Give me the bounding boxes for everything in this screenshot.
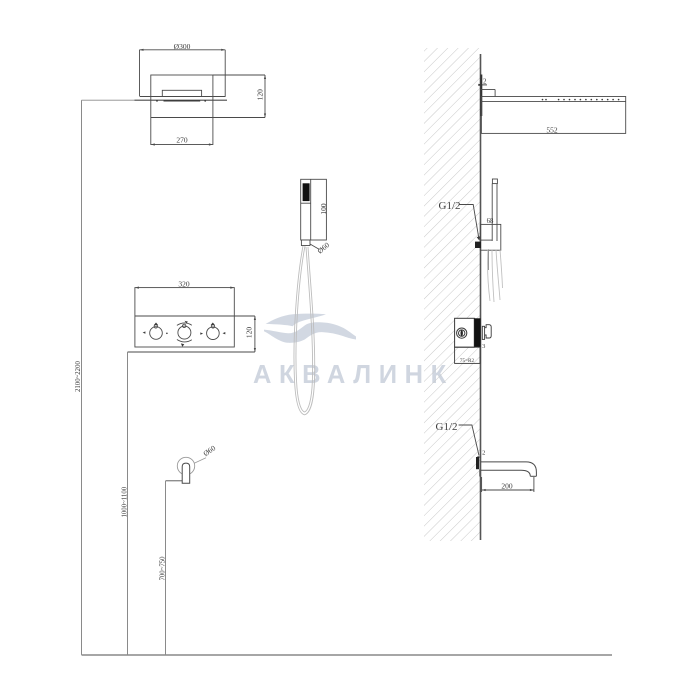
svg-text:700~750: 700~750	[160, 556, 167, 581]
svg-text:1000~1100: 1000~1100	[122, 486, 129, 517]
svg-text:АКВАЛИНК: АКВАЛИНК	[253, 361, 454, 389]
svg-text:75=R2: 75=R2	[460, 358, 475, 364]
svg-text:320: 320	[178, 279, 190, 288]
svg-text:G1/2: G1/2	[436, 421, 458, 433]
svg-text:120: 120	[245, 327, 254, 339]
svg-text:100: 100	[319, 203, 328, 215]
svg-text:G1/2: G1/2	[439, 200, 461, 212]
svg-text:270: 270	[176, 136, 188, 145]
svg-text:68: 68	[487, 218, 494, 225]
svg-text:Ø300: Ø300	[174, 42, 191, 51]
svg-text:120: 120	[256, 89, 265, 101]
svg-text:2: 2	[483, 78, 487, 86]
svg-text:3: 3	[482, 343, 485, 350]
svg-text:552: 552	[546, 126, 558, 135]
svg-text:2: 2	[482, 450, 485, 457]
svg-text:200: 200	[501, 482, 513, 491]
svg-text:2100~2200: 2100~2200	[75, 361, 82, 392]
